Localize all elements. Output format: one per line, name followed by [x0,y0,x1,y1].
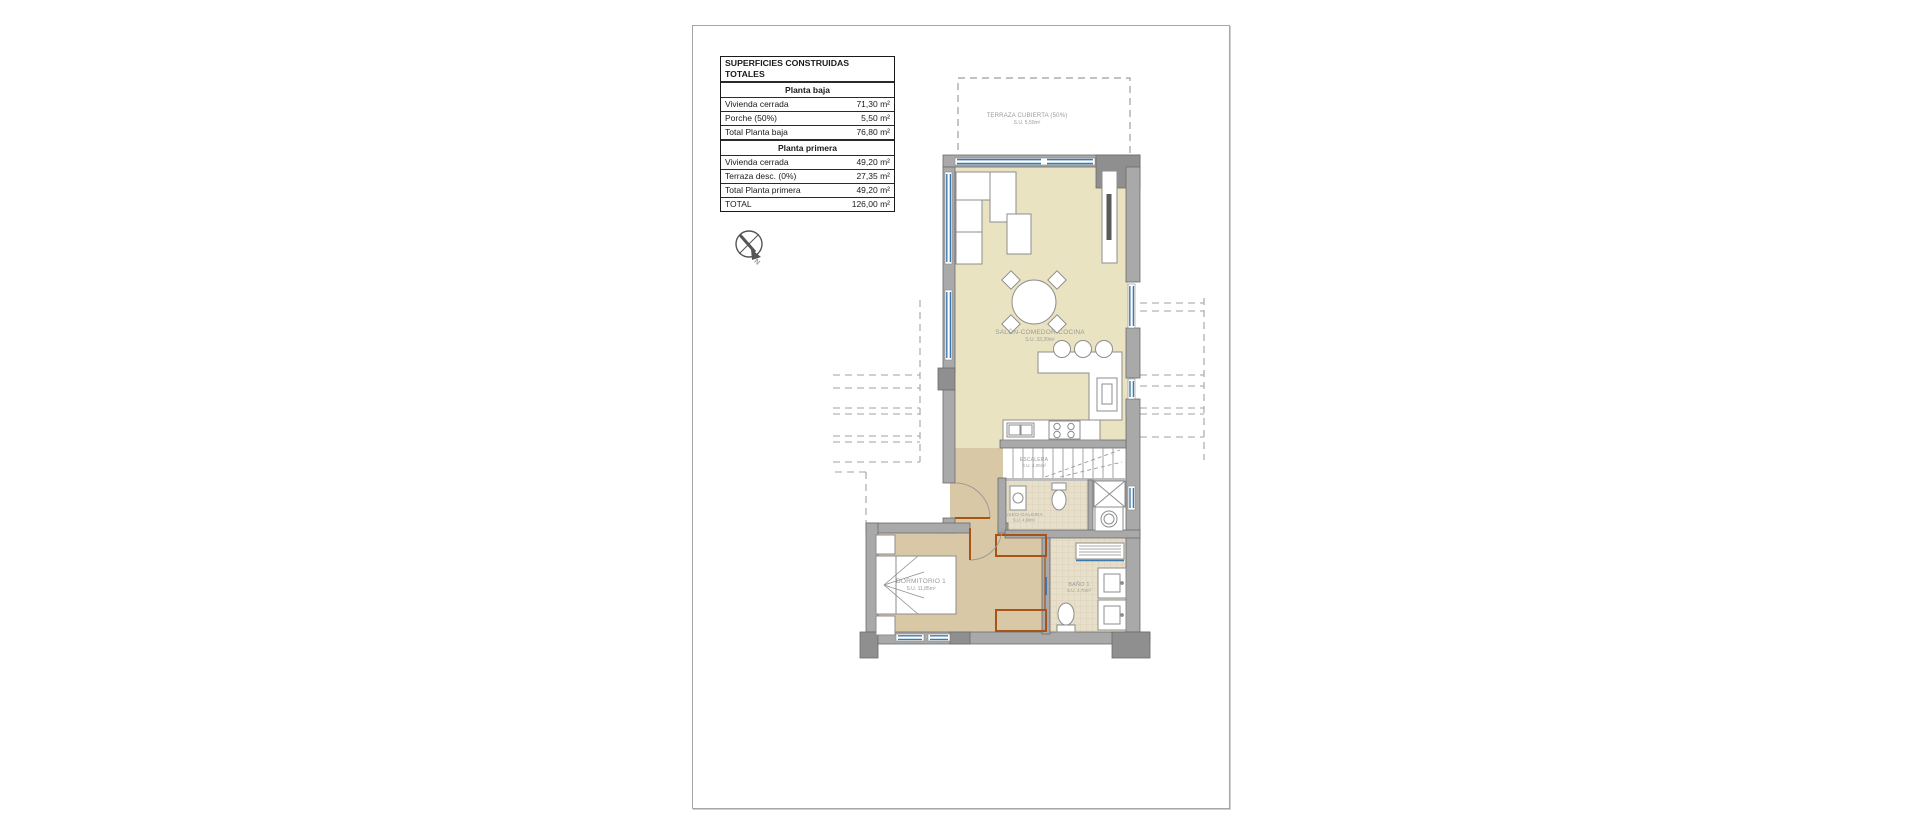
salon-label: SALÓN-COMEDOR-COCINA [995,327,1085,336]
aseo-area: S.U. 4,90m² [1013,518,1036,523]
stairs-floor [1003,448,1122,478]
window-left-2 [945,290,952,360]
window-bedroom-2 [928,634,950,641]
bar-stool [1075,341,1092,358]
page-background: SUPERFICIES CONSTRUIDAS TOTALES Planta b… [0,0,1920,837]
bar-stool [1096,341,1113,358]
bano-area: S.U. 4,70m² [1067,588,1092,593]
window-bedroom-1 [896,634,924,641]
dining-table [1012,280,1056,324]
coffee-table [1007,214,1031,254]
aseo-toilet-tank [1052,483,1066,490]
terrace-projection-left [833,300,920,523]
shower-tray [1076,543,1124,561]
floor-plan: TERRAZA CUBIERTA (50%) S.U. 5,50m² SALÓN… [0,0,1920,837]
salon-area: S.U. 33,20m² [1025,337,1055,343]
cooktop [1049,421,1080,439]
window-galeria [1128,486,1135,510]
terrace-projection-right [1140,298,1204,460]
bath-toilet [1057,603,1075,632]
window-left-1 [945,172,952,264]
window-right-1 [1128,284,1135,328]
kitchen-counter [1003,420,1100,440]
nightstand [876,616,895,635]
dormitorio-area: S.U. 11,85m² [906,586,935,592]
aseo-toilet [1052,490,1066,510]
galeria-shower [1094,481,1125,507]
escalera-area: S.U. 4,05m² [1022,463,1047,468]
washing-machine [1095,507,1123,531]
compass-north-icon: N [736,231,762,267]
bar-stool [1054,341,1071,358]
bed-mattress [876,556,956,614]
terraza-area: S.U. 5,50m² [1014,120,1041,126]
tv-unit [1102,171,1117,263]
bano-label: BAÑO 1 [1068,581,1089,588]
dormitorio-label: DORMITORIO 1 [896,578,946,585]
terraza-label: TERRAZA CUBIERTA (50%) [987,113,1068,119]
window-right-2 [1128,379,1135,399]
nightstand [876,535,895,554]
